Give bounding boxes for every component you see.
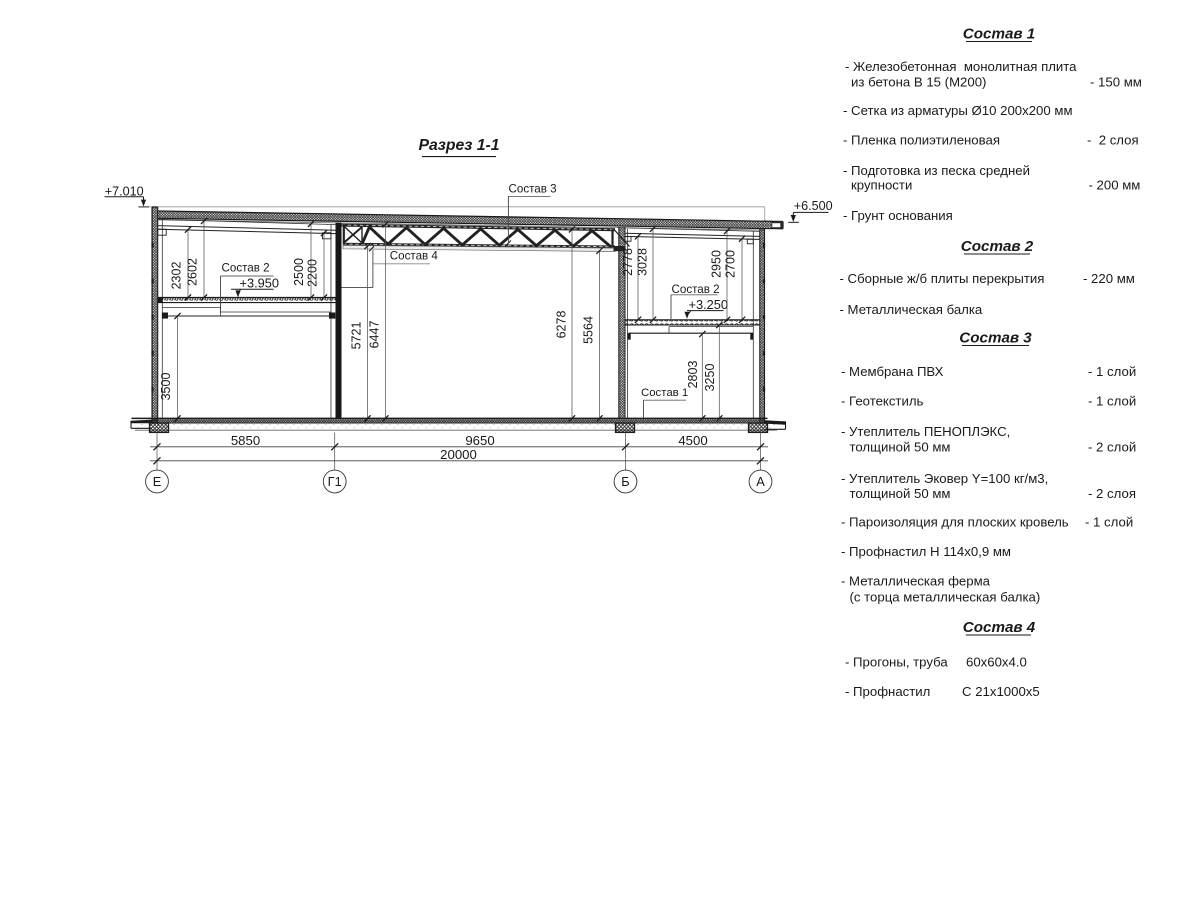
svg-text:- Пароизоляция для плоских кро: - Пароизоляция для плоских кровель: [841, 515, 1069, 530]
svg-text:3500: 3500: [159, 373, 173, 401]
svg-text:- Профнастил: - Профнастил: [845, 684, 930, 699]
svg-text:- 2 слой: - 2 слой: [1088, 440, 1136, 455]
svg-text:- 220 мм: - 220 мм: [1083, 271, 1135, 286]
svg-text:2700: 2700: [724, 250, 738, 278]
svg-text:толщиной 50 мм: толщиной 50 мм: [850, 440, 951, 455]
svg-text:Разрез 1-1: Разрез 1-1: [418, 137, 499, 154]
svg-text:2778: 2778: [621, 248, 635, 276]
svg-text:3250: 3250: [703, 364, 717, 392]
svg-text:+3.950: +3.950: [240, 276, 280, 291]
svg-text:- Мембрана ПВХ: - Мембрана ПВХ: [841, 364, 944, 379]
svg-text:- Геотекстиль: - Геотекстиль: [841, 394, 924, 409]
svg-text:2302: 2302: [170, 262, 184, 290]
svg-text:- 2 слоя: - 2 слоя: [1087, 133, 1139, 148]
svg-text:- 1 слой: - 1 слой: [1085, 515, 1133, 530]
svg-text:- Металлическая балка: - Металлическая балка: [840, 302, 983, 317]
svg-text:5564: 5564: [582, 316, 596, 344]
svg-text:5850: 5850: [231, 433, 260, 448]
svg-text:- Железобетонная монолитная п: - Железобетонная монолитная плита: [845, 59, 1077, 74]
svg-text:- Сетка из арматуры Ø10 200х20: - Сетка из арматуры Ø10 200х200 мм: [843, 103, 1073, 118]
svg-text:Е: Е: [153, 474, 162, 489]
svg-text:- Пленка полиэтиленовая: - Пленка полиэтиленовая: [843, 133, 1000, 148]
svg-text:6278: 6278: [555, 311, 569, 339]
svg-text:- Сборные ж/б плиты перекрытия: - Сборные ж/б плиты перекрытия: [840, 271, 1045, 286]
svg-text:из бетона В 15 (М200): из бетона В 15 (М200): [851, 75, 986, 90]
svg-text:+7.010: +7.010: [105, 184, 144, 198]
svg-text:(с торца металлическая балка): (с торца металлическая балка): [850, 590, 1041, 605]
svg-text:толщиной 50 мм: толщиной 50 мм: [850, 486, 951, 501]
svg-text:Состав 4: Состав 4: [963, 619, 1036, 636]
svg-text:Состав 4: Состав 4: [390, 250, 439, 263]
svg-text:Б: Б: [621, 474, 629, 489]
svg-text:2803: 2803: [686, 361, 700, 389]
svg-text:- Грунт основания: - Грунт основания: [843, 208, 953, 223]
svg-text:- Металлическая ферма: - Металлическая ферма: [841, 574, 991, 589]
svg-text:- Прогоны, труба: - Прогоны, труба: [845, 655, 948, 670]
svg-text:3028: 3028: [636, 248, 650, 276]
svg-text:Г1: Г1: [328, 474, 342, 489]
svg-text:С 21х1000х5: С 21х1000х5: [962, 684, 1040, 699]
svg-text:2500: 2500: [292, 258, 306, 286]
svg-text:Состав 2: Состав 2: [222, 262, 270, 275]
svg-text:60х60х4.0: 60х60х4.0: [966, 655, 1027, 670]
svg-text:2200: 2200: [306, 259, 320, 287]
svg-text:20000: 20000: [440, 447, 477, 462]
svg-text:9650: 9650: [465, 433, 494, 448]
svg-text:Состав 2: Состав 2: [961, 238, 1034, 255]
svg-text:Состав 3: Состав 3: [959, 330, 1032, 347]
svg-text:Состав 2: Состав 2: [672, 283, 720, 296]
svg-text:Состав 1: Состав 1: [641, 387, 688, 399]
svg-text:- Утеплитель Эковер Y=100 кг/м: - Утеплитель Эковер Y=100 кг/м3,: [841, 471, 1048, 486]
svg-text:5721: 5721: [350, 322, 364, 350]
svg-text:- 200 мм: - 200 мм: [1089, 178, 1141, 193]
svg-text:Состав 3: Состав 3: [509, 182, 557, 195]
svg-text:Состав 1: Состав 1: [963, 26, 1035, 43]
svg-text:4500: 4500: [678, 433, 707, 448]
svg-text:+6.500: +6.500: [794, 199, 833, 213]
svg-text:2602: 2602: [186, 258, 200, 286]
svg-text:2950: 2950: [710, 250, 724, 278]
svg-text:- Утеплитель ПЕНОПЛЭКС,: - Утеплитель ПЕНОПЛЭКС,: [841, 424, 1010, 439]
svg-text:крупности: крупности: [851, 178, 912, 193]
svg-text:- Профнастил Н 114х0,9 мм: - Профнастил Н 114х0,9 мм: [841, 544, 1011, 559]
svg-text:- 2 слоя: - 2 слоя: [1088, 486, 1136, 501]
svg-text:- 150 мм: - 150 мм: [1090, 75, 1142, 90]
svg-text:- Подготовка из песка средней: - Подготовка из песка средней: [843, 163, 1030, 178]
svg-text:6447: 6447: [367, 321, 381, 349]
svg-text:+3.250: +3.250: [689, 297, 729, 312]
svg-text:- 1 слой: - 1 слой: [1088, 394, 1136, 409]
svg-text:А: А: [756, 474, 765, 489]
svg-text:- 1 слой: - 1 слой: [1088, 364, 1136, 379]
